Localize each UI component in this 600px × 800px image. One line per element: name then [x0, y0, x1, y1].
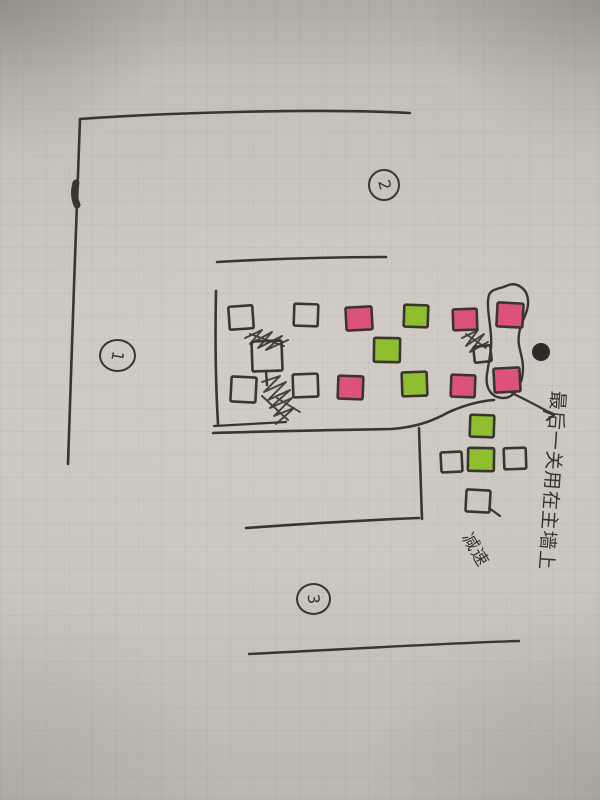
mid-wall	[217, 257, 386, 262]
under-field-curve	[213, 400, 494, 433]
outline-block	[228, 305, 254, 330]
outer-wall-top	[80, 111, 410, 119]
pink-block	[338, 376, 364, 400]
box-bottom-wall	[246, 518, 419, 528]
outline-block	[293, 374, 319, 398]
area-marker-1: 1	[99, 339, 136, 372]
outline-block	[294, 304, 319, 327]
green-block	[402, 372, 428, 397]
green-block	[470, 415, 495, 438]
bottom-long-wall	[249, 641, 519, 654]
pink-block	[496, 302, 523, 327]
outline-block	[230, 376, 256, 402]
pink-block	[493, 367, 520, 392]
pink-block	[451, 375, 476, 398]
black-dot	[532, 343, 550, 361]
sketch-ink-layer	[0, 0, 600, 800]
area-marker-2-digit: 2	[375, 178, 393, 192]
area-marker-3: 3	[296, 583, 331, 615]
graph-paper: 1 2 3 最后一关用在主墙上 减速	[0, 0, 600, 800]
area-marker-3-digit: 3	[305, 593, 322, 605]
area-marker-2: 2	[368, 169, 400, 201]
scribble-near-shoe	[462, 330, 488, 352]
wall-blob	[75, 183, 77, 205]
area-marker-1-digit: 1	[109, 349, 127, 362]
outline-block	[440, 451, 462, 472]
green-block	[404, 305, 429, 328]
pink-block	[453, 309, 478, 331]
outline-block	[465, 489, 490, 512]
green-block	[468, 448, 494, 471]
outline-block	[504, 448, 527, 470]
outer-wall-left	[68, 119, 80, 464]
block-stem	[266, 371, 267, 385]
pink-block	[345, 306, 372, 330]
box-right-wall	[419, 428, 422, 519]
field-left-wall	[216, 291, 218, 424]
green-block	[374, 338, 400, 362]
